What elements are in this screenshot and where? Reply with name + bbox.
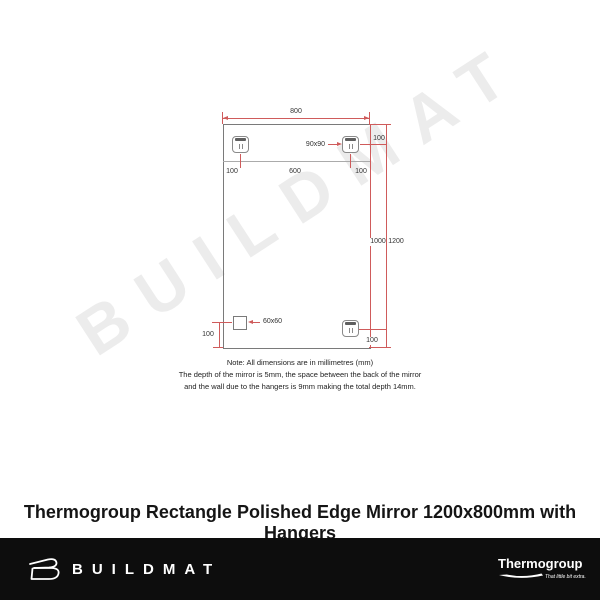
hanger-bracket-bottom-right — [342, 320, 359, 337]
dim-line-1200 — [386, 124, 387, 347]
hanger-slots — [343, 144, 358, 149]
note-line-2: The depth of the mirror is 5mm, the spac… — [0, 370, 600, 379]
arrow-right-icon — [364, 116, 369, 120]
buildmat-wordmark: BUILDMAT — [72, 561, 221, 578]
dim-tick — [240, 154, 241, 168]
dim-ext-right — [369, 112, 370, 124]
dim-label-600: 600 — [286, 168, 304, 176]
hanger-size-label: 90x90 — [299, 141, 325, 149]
hanger-bar — [345, 322, 356, 325]
dim-line-100-bl — [219, 322, 220, 348]
product-image: BUILDMAT 800 100 600 100 90x90 — [0, 0, 600, 600]
dim-label-100-left: 100 — [223, 168, 241, 176]
thermogroup-tagline: That little bit extra... — [545, 574, 586, 580]
dim-label-100-bottom-left: 100 — [200, 331, 216, 339]
square-size-label: 60x60 — [263, 318, 287, 326]
note-line-3: and the wall due to the hangers is 9mm m… — [0, 382, 600, 391]
dim-ext — [212, 322, 232, 323]
dim-ext — [369, 124, 391, 125]
note-line-1: Note: All dimensions are in millimetres … — [0, 358, 600, 367]
hanger-bracket-top-left — [232, 136, 249, 153]
thermogroup-swoosh-icon: That little bit extra... — [498, 570, 586, 582]
hanger-bar — [235, 138, 246, 141]
thermogroup-wordmark: Thermogroup — [498, 557, 583, 570]
dim-label-100-right: 100 — [352, 168, 370, 176]
dim-label-800: 800 — [223, 108, 369, 116]
hanger-bracket-top-right — [342, 136, 359, 153]
dim-ext — [213, 347, 223, 348]
dim-line-800 — [223, 118, 369, 119]
junction-box-60x60 — [233, 316, 247, 330]
callout-line — [252, 322, 260, 323]
buildmat-logo: BUILDMAT — [28, 555, 221, 583]
dim-line-inner-vertical — [370, 124, 371, 347]
hanger-slots — [233, 144, 248, 149]
hanger-rail-line — [223, 161, 370, 162]
dim-ext — [360, 144, 386, 145]
dim-label-1200: 1200 — [388, 238, 404, 246]
dim-label-1000: 1000 — [370, 238, 386, 246]
arrow-left-icon — [223, 116, 228, 120]
dim-tick — [350, 154, 351, 168]
arrow-right-icon — [337, 142, 342, 146]
hanger-bar — [345, 138, 356, 141]
dim-label-100-top-right: 100 — [371, 135, 387, 143]
footer-brand-bar: BUILDMAT Thermogroup That little bit ext… — [0, 538, 600, 600]
dim-label-100-bottom-right: 100 — [364, 337, 380, 345]
dim-ext — [369, 347, 391, 348]
hanger-slots — [343, 328, 358, 333]
dim-ext — [359, 329, 386, 330]
buildmat-b-icon — [28, 555, 62, 583]
thermogroup-logo: Thermogroup That little bit extra... — [498, 557, 586, 582]
